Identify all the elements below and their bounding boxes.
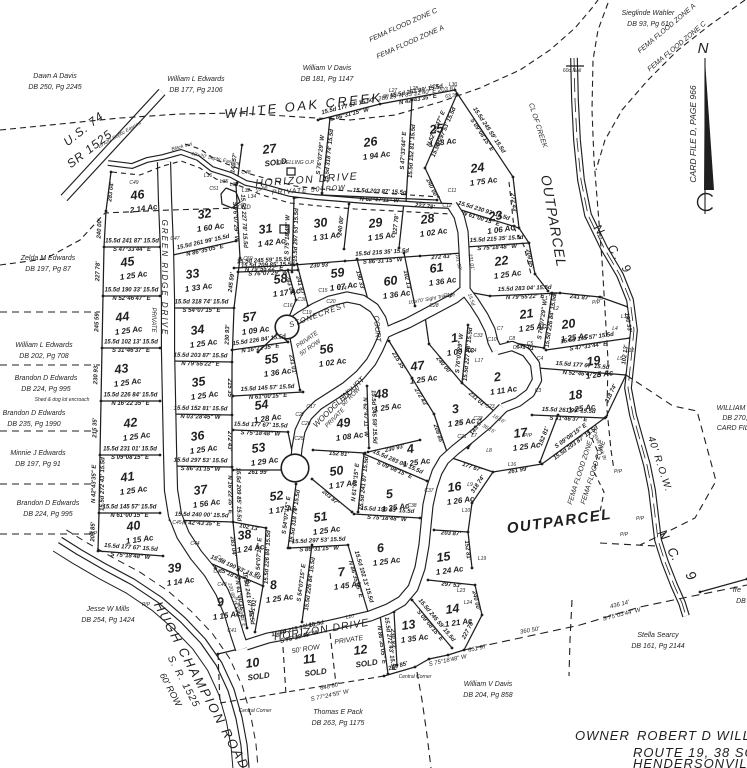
svg-text:C48: C48 bbox=[241, 170, 250, 176]
svg-text:Brandon D Edwards: Brandon D Edwards bbox=[15, 375, 78, 382]
svg-text:William L Edwards: William L Edwards bbox=[15, 342, 73, 349]
svg-text:230 93': 230 93' bbox=[225, 324, 232, 346]
svg-text:N 61°00'15" E: N 61°00'15" E bbox=[110, 513, 149, 519]
svg-text:DB 204, Pg 858: DB 204, Pg 858 bbox=[463, 692, 513, 699]
svg-text:William V Davis: William V Davis bbox=[464, 681, 513, 688]
svg-text:51: 51 bbox=[313, 509, 329, 525]
svg-text:C44: C44 bbox=[190, 541, 199, 547]
svg-text:230 93': 230 93' bbox=[93, 364, 99, 385]
svg-text:S 86°31'15" W: S 86°31'15" W bbox=[181, 466, 222, 473]
svg-text:15.5d 241 87' 15.5d: 15.5d 241 87' 15.5d bbox=[105, 239, 159, 245]
svg-text:21: 21 bbox=[518, 306, 535, 322]
svg-text:Central Corner: Central Corner bbox=[399, 674, 432, 680]
svg-text:C27: C27 bbox=[295, 412, 304, 418]
svg-text:WILLIAM: WILLIAM bbox=[717, 405, 746, 412]
svg-text:DB 177, Pg 2106: DB 177, Pg 2106 bbox=[169, 87, 222, 94]
svg-text:C7: C7 bbox=[497, 326, 504, 332]
svg-text:C51: C51 bbox=[209, 186, 218, 192]
svg-text:Brandon D Edwards: Brandon D Edwards bbox=[3, 410, 66, 417]
svg-text:L24: L24 bbox=[464, 600, 473, 606]
svg-text:18: 18 bbox=[568, 387, 584, 403]
svg-text:OWNER: OWNER bbox=[575, 728, 630, 743]
svg-text:22: 22 bbox=[493, 253, 510, 269]
svg-text:C47: C47 bbox=[170, 236, 179, 242]
svg-text:DB 161, Pg 2144: DB 161, Pg 2144 bbox=[631, 643, 684, 650]
svg-text:C14: C14 bbox=[337, 286, 346, 292]
svg-text:N 42°43'35" E: N 42°43'35" E bbox=[182, 520, 222, 527]
svg-text:15.5d 203 87' 15.5d: 15.5d 203 87' 15.5d bbox=[174, 353, 228, 360]
svg-text:P/P: P/P bbox=[524, 433, 533, 439]
svg-text:L6: L6 bbox=[456, 420, 462, 426]
svg-text:L19: L19 bbox=[478, 556, 487, 562]
svg-text:DB 263, Pg 1175: DB 263, Pg 1175 bbox=[312, 720, 365, 727]
svg-text:C16: C16 bbox=[283, 303, 292, 309]
svg-text:L35: L35 bbox=[220, 179, 229, 185]
svg-text:14: 14 bbox=[445, 601, 461, 617]
svg-text:Dawn A Davis: Dawn A Davis bbox=[33, 73, 77, 80]
svg-text:42: 42 bbox=[122, 415, 139, 431]
svg-text:N 16°22'35" E: N 16°22'35" E bbox=[226, 475, 233, 514]
svg-text:N 79°55'22" E: N 79°55'22" E bbox=[181, 361, 220, 368]
svg-text:C49: C49 bbox=[129, 180, 138, 186]
svg-text:40: 40 bbox=[125, 518, 142, 534]
svg-text:C37: C37 bbox=[424, 488, 433, 494]
svg-text:DB 224, Pg 995: DB 224, Pg 995 bbox=[21, 386, 71, 393]
svg-text:32: 32 bbox=[197, 206, 213, 222]
svg-text:15.5d 297 53' 15.5d: 15.5d 297 53' 15.5d bbox=[174, 458, 228, 465]
svg-text:C26: C26 bbox=[301, 421, 310, 427]
svg-text:N: N bbox=[698, 40, 709, 57]
svg-text:C28: C28 bbox=[429, 303, 438, 309]
svg-text:DB 197, Pg 87: DB 197, Pg 87 bbox=[25, 266, 72, 273]
svg-text:C12: C12 bbox=[442, 203, 451, 209]
svg-text:15.5d 152 81' 15.5d: 15.5d 152 81' 15.5d bbox=[174, 406, 228, 413]
svg-text:10: 10 bbox=[245, 655, 261, 671]
svg-text:52: 52 bbox=[269, 488, 285, 504]
svg-text:DB 250, Pg 2245: DB 250, Pg 2245 bbox=[28, 84, 81, 91]
svg-text:P/P: P/P bbox=[142, 602, 151, 608]
svg-text:N 52°46'47" E: N 52°46'47" E bbox=[112, 296, 151, 302]
svg-text:DB 197, Pg 91: DB 197, Pg 91 bbox=[15, 461, 61, 468]
svg-text:HENDERSONVILLE, N C: HENDERSONVILLE, N C bbox=[633, 756, 747, 768]
svg-text:C30: C30 bbox=[297, 297, 306, 303]
svg-text:12: 12 bbox=[353, 642, 369, 658]
svg-text:C10: C10 bbox=[487, 337, 496, 343]
svg-text:C25: C25 bbox=[294, 436, 303, 442]
svg-text:53: 53 bbox=[251, 440, 267, 456]
svg-text:DWELLING O.P.: DWELLING O.P. bbox=[278, 160, 315, 166]
svg-text:Central Corner: Central Corner bbox=[239, 708, 272, 714]
svg-text:L34: L34 bbox=[248, 194, 257, 200]
svg-text:L33: L33 bbox=[230, 182, 239, 188]
svg-text:15.5d 231 01' 15.5d: 15.5d 231 01' 15.5d bbox=[103, 447, 157, 453]
svg-text:20: 20 bbox=[560, 316, 577, 332]
svg-text:DB 254, Pg 1424: DB 254, Pg 1424 bbox=[81, 617, 134, 624]
svg-text:P/P: P/P bbox=[636, 516, 645, 522]
svg-text:Brandon D Edwards: Brandon D Edwards bbox=[17, 500, 80, 507]
svg-text:William L Edwards: William L Edwards bbox=[167, 76, 225, 83]
svg-text:N 42°43'35" E: N 42°43'35" E bbox=[91, 464, 98, 503]
svg-text:15.5d 190 33' 15.5d: 15.5d 190 33' 15.5d bbox=[105, 288, 159, 294]
svg-text:Jesse W Mills: Jesse W Mills bbox=[86, 606, 130, 613]
svg-text:59: 59 bbox=[330, 265, 346, 281]
svg-text:261 99': 261 99' bbox=[247, 470, 268, 476]
svg-text:215 35': 215 35' bbox=[226, 378, 232, 399]
svg-text:C19: C19 bbox=[302, 310, 311, 316]
svg-text:DB: DB bbox=[736, 598, 746, 605]
svg-text:60: 60 bbox=[383, 273, 399, 289]
svg-text:C23: C23 bbox=[485, 404, 494, 410]
svg-text:41: 41 bbox=[119, 469, 136, 485]
svg-text:C17: C17 bbox=[306, 404, 315, 410]
svg-text:PRIVATE: PRIVATE bbox=[150, 308, 156, 334]
svg-text:28: 28 bbox=[419, 211, 436, 227]
svg-text:15.5d 145 57' 15.5d: 15.5d 145 57' 15.5d bbox=[103, 505, 157, 511]
svg-text:S 31°46'37" E: S 31°46'37" E bbox=[112, 348, 151, 354]
svg-text:C11: C11 bbox=[448, 188, 457, 194]
svg-text:240 00': 240 00' bbox=[96, 218, 103, 240]
svg-text:33: 33 bbox=[185, 266, 201, 282]
svg-text:L36: L36 bbox=[204, 173, 213, 179]
svg-text:Shed & dog lot encroach: Shed & dog lot encroach bbox=[35, 397, 90, 403]
svg-text:34: 34 bbox=[190, 322, 206, 338]
svg-text:S 47°33'44" E: S 47°33'44" E bbox=[113, 247, 152, 253]
svg-text:39: 39 bbox=[167, 560, 183, 576]
svg-text:William V Davis: William V Davis bbox=[303, 65, 352, 72]
svg-text:P/P: P/P bbox=[614, 469, 623, 475]
svg-text:C15: C15 bbox=[318, 288, 327, 294]
svg-text:C8: C8 bbox=[509, 336, 516, 342]
svg-text:Stella Searcy: Stella Searcy bbox=[637, 632, 679, 639]
svg-text:C41: C41 bbox=[227, 628, 236, 634]
svg-text:Zelda M Edwards: Zelda M Edwards bbox=[20, 255, 76, 262]
svg-text:L17: L17 bbox=[475, 358, 484, 364]
svg-text:fre: fre bbox=[733, 587, 741, 594]
svg-text:ROBERT D WILLIAM: ROBERT D WILLIAM bbox=[637, 728, 747, 743]
svg-text:15.5d 102 13' 15.5d: 15.5d 102 13' 15.5d bbox=[104, 340, 158, 346]
svg-text:31: 31 bbox=[258, 221, 274, 237]
svg-text:227 78': 227 78' bbox=[95, 261, 101, 282]
svg-text:GREEN RIDGE DRIVE: GREEN RIDGE DRIVE bbox=[160, 220, 169, 337]
svg-text:203 87': 203 87' bbox=[440, 530, 462, 537]
svg-text:152 81': 152 81' bbox=[329, 451, 350, 458]
svg-text:30: 30 bbox=[313, 215, 329, 231]
svg-text:C33: C33 bbox=[473, 333, 482, 339]
svg-text:DB 235, Pg 1990: DB 235, Pg 1990 bbox=[7, 421, 60, 428]
svg-text:215 35': 215 35' bbox=[92, 417, 98, 438]
svg-text:DB 181, Pg 1147: DB 181, Pg 1147 bbox=[301, 76, 355, 83]
svg-text:61: 61 bbox=[429, 260, 445, 276]
svg-text:44: 44 bbox=[114, 309, 131, 325]
svg-text:DB 224, Pg 995: DB 224, Pg 995 bbox=[23, 511, 73, 518]
svg-text:245 59': 245 59' bbox=[94, 311, 100, 332]
svg-text:DB 270,: DB 270, bbox=[722, 415, 747, 422]
svg-text:29: 29 bbox=[367, 215, 384, 231]
svg-text:C3: C3 bbox=[535, 388, 542, 394]
svg-text:C4: C4 bbox=[537, 356, 544, 362]
svg-text:L16: L16 bbox=[508, 462, 517, 468]
svg-text:15.5d 318 74' 15.5d: 15.5d 318 74' 15.5d bbox=[175, 300, 229, 306]
svg-text:CARD FILE D, PAGE 966: CARD FILE D, PAGE 966 bbox=[688, 85, 698, 182]
svg-text:C21: C21 bbox=[457, 434, 466, 440]
svg-text:L20: L20 bbox=[345, 613, 354, 620]
svg-text:13: 13 bbox=[401, 617, 417, 633]
svg-text:15.5d 272 43' 15.5d: 15.5d 272 43' 15.5d bbox=[100, 457, 107, 511]
svg-text:15.5d 226 84' 15.5d: 15.5d 226 84' 15.5d bbox=[104, 393, 158, 399]
svg-text:L8: L8 bbox=[486, 448, 492, 454]
svg-text:43: 43 bbox=[113, 361, 130, 377]
svg-text:P/P: P/P bbox=[620, 532, 629, 538]
svg-text:11: 11 bbox=[302, 651, 317, 667]
svg-text:L3: L3 bbox=[597, 296, 603, 302]
svg-text:C20: C20 bbox=[326, 299, 335, 305]
svg-text:CARD FILE: CARD FILE bbox=[717, 425, 747, 432]
svg-text:S 54°07'15" E: S 54°07'15" E bbox=[182, 308, 221, 314]
svg-text:C45: C45 bbox=[172, 520, 181, 526]
svg-text:C43: C43 bbox=[217, 582, 226, 588]
svg-text:S 75°18'48" W: S 75°18'48" W bbox=[284, 214, 291, 255]
svg-text:N 16°22'35" E: N 16°22'35" E bbox=[111, 401, 150, 407]
svg-text:L10: L10 bbox=[462, 508, 471, 514]
svg-text:272 43': 272 43' bbox=[226, 430, 232, 451]
svg-text:S 09°08'15" E: S 09°08'15" E bbox=[111, 455, 150, 461]
svg-text:Sieglinde Wahler: Sieglinde Wahler bbox=[622, 10, 675, 17]
svg-text:15.5d 209 85' 15.5d: 15.5d 209 85' 15.5d bbox=[235, 467, 242, 521]
svg-text:Minnie J Edwards: Minnie J Edwards bbox=[10, 450, 66, 457]
svg-text:24: 24 bbox=[469, 160, 486, 176]
svg-text:Thomas E Pack: Thomas E Pack bbox=[313, 709, 363, 716]
svg-text:DB 202, Pg 708: DB 202, Pg 708 bbox=[19, 353, 69, 360]
svg-text:N 03°28'45" W: N 03°28'45" W bbox=[180, 414, 221, 421]
svg-text:50: 50 bbox=[329, 463, 345, 479]
svg-text:209 85': 209 85' bbox=[90, 521, 97, 543]
svg-text:60d Nail: 60d Nail bbox=[563, 68, 582, 74]
